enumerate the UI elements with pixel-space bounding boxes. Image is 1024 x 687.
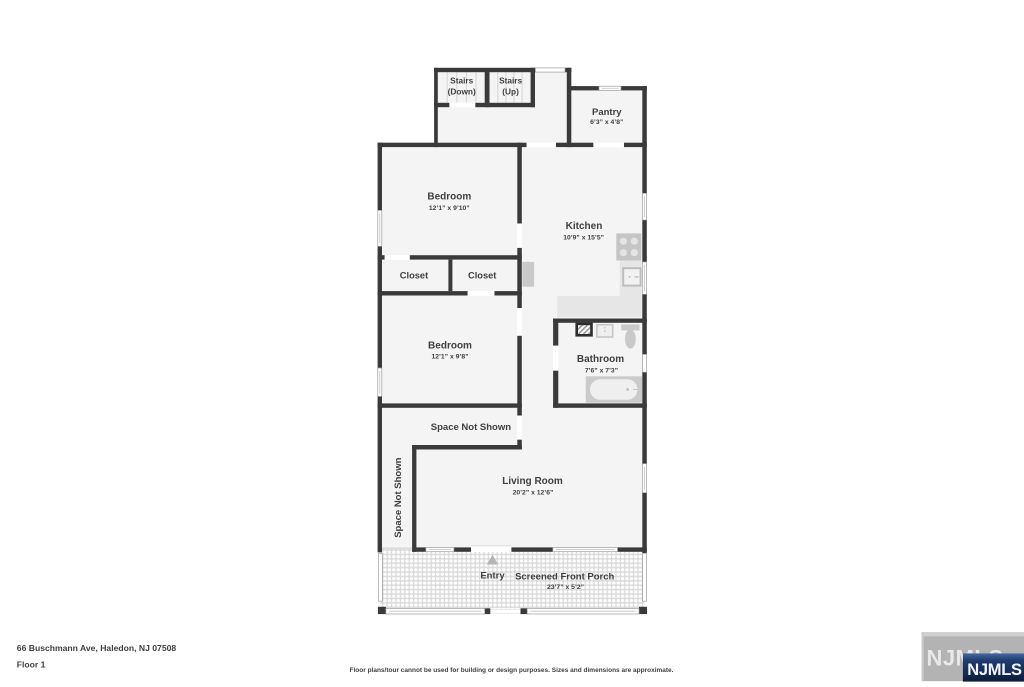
svg-text:(Down): (Down)	[448, 87, 476, 97]
svg-text:12’1” x 9’10”: 12’1” x 9’10”	[429, 205, 470, 212]
svg-text:Space Not Shown: Space Not Shown	[431, 422, 511, 433]
svg-text:Closet: Closet	[468, 271, 496, 281]
svg-text:Floor 1: Floor 1	[17, 659, 46, 669]
svg-text:23’7” x 5’2”: 23’7” x 5’2”	[547, 584, 584, 591]
svg-text:Bathroom: Bathroom	[577, 354, 624, 365]
svg-text:Pantry: Pantry	[592, 107, 622, 118]
svg-text:6’3” x 4’8”: 6’3” x 4’8”	[590, 119, 623, 126]
svg-text:NJMLS: NJMLS	[967, 661, 1022, 679]
svg-text:Screened Front Porch: Screened Front Porch	[515, 572, 614, 583]
svg-text:Stairs: Stairs	[499, 76, 522, 86]
svg-text:12’1” x 9’8”: 12’1” x 9’8”	[431, 354, 468, 361]
svg-text:66 Buschmann Ave, Haledon, NJ: 66 Buschmann Ave, Haledon, NJ 07508	[17, 643, 177, 653]
svg-text:Bedroom: Bedroom	[428, 340, 472, 351]
svg-text:Space Not Shown: Space Not Shown	[393, 457, 404, 537]
svg-text:Floor plans/tour cannot be use: Floor plans/tour cannot be used for buil…	[350, 667, 674, 674]
svg-text:Kitchen: Kitchen	[566, 221, 603, 232]
svg-text:Stairs: Stairs	[450, 76, 473, 86]
svg-text:Living Room: Living Room	[502, 476, 563, 487]
svg-text:(Up): (Up)	[502, 87, 519, 97]
svg-text:Closet: Closet	[400, 271, 428, 281]
svg-text:7’6” x 7’3”: 7’6” x 7’3”	[585, 368, 618, 375]
svg-text:20’2” x 12’6”: 20’2” x 12’6”	[513, 490, 554, 497]
svg-text:10’9” x 15’5”: 10’9” x 15’5”	[563, 234, 604, 241]
svg-text:Bedroom: Bedroom	[427, 192, 471, 203]
svg-text:Entry: Entry	[480, 571, 505, 582]
